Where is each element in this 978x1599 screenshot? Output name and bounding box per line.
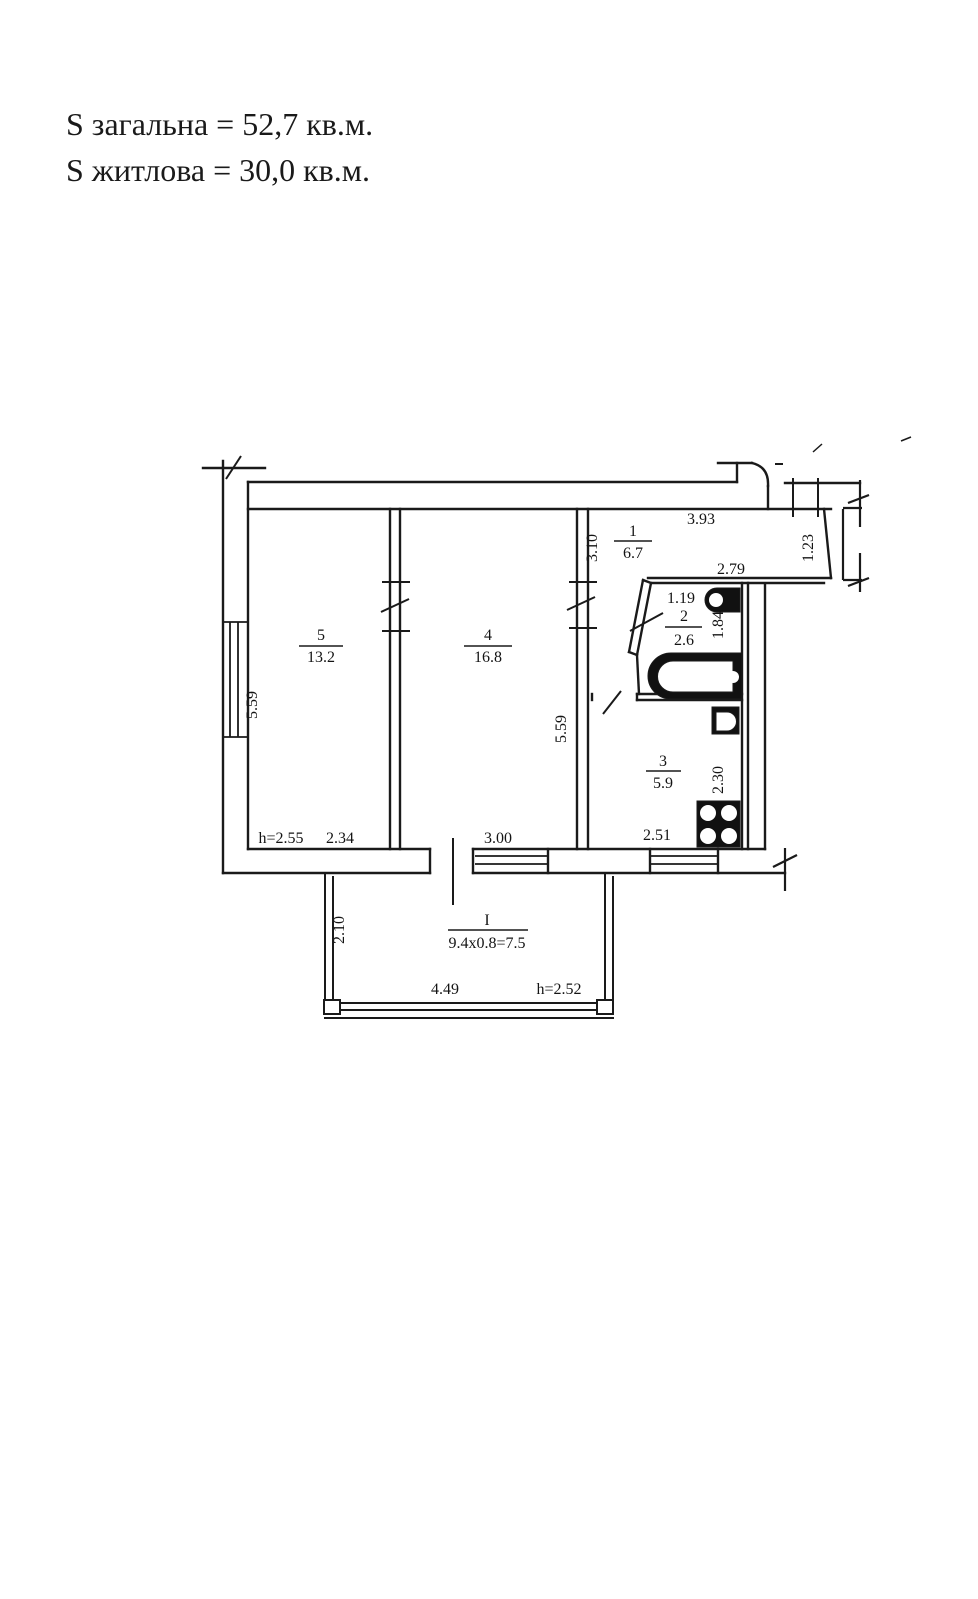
dim-room5-width: 2.34 (326, 830, 354, 847)
dim-kitchen-depth: 2.30 (710, 766, 727, 794)
room5-area: 13.2 (307, 649, 335, 666)
bathtub-icon (648, 653, 742, 699)
toilet-icon (705, 588, 740, 612)
dim-hall-width: 3.10 (584, 534, 601, 562)
living-area-title: S житлова = 30,0 кв.м. (66, 152, 370, 189)
room4-number: 4 (484, 627, 492, 644)
hall-area: 6.7 (623, 545, 643, 562)
stove-icon (697, 801, 740, 847)
floor-plan-drawing: 5 13.2 4 16.8 1 6.7 2 2.6 3 5.9 I 9.4x0.… (0, 0, 978, 1599)
dim-room5-wall-left: 5.59 (244, 691, 261, 719)
hall-number: 1 (629, 523, 637, 540)
dim-bathroom-top: 2.79 (717, 561, 745, 578)
dim-hall-length: 3.93 (687, 511, 715, 528)
bathroom-number: 2 (680, 608, 688, 625)
outer-walls (203, 461, 860, 873)
dim-balcony-depth: 2.10 (331, 916, 348, 944)
room4-area: 16.8 (474, 649, 502, 666)
floor-plan-page: S загальна = 52,7 кв.м. S житлова = 30,0… (0, 0, 978, 1599)
balcony-number: I (484, 912, 489, 929)
dim-room4-wall-right: 5.59 (553, 715, 570, 743)
dim-room4-width: 3.00 (484, 830, 512, 847)
dim-hall-right: 1.23 (800, 534, 817, 562)
room5-number: 5 (317, 627, 325, 644)
dim-balcony-height: h=2.52 (536, 981, 581, 998)
dim-bathroom-entry: 1.19 (667, 590, 695, 607)
kitchen-area: 5.9 (653, 775, 673, 792)
dim-kitchen-width: 2.51 (643, 827, 671, 844)
bathroom-area: 2.6 (674, 632, 694, 649)
interior-walls (390, 509, 831, 873)
total-area-title: S загальна = 52,7 кв.м. (66, 106, 373, 143)
sink-icon (712, 707, 739, 734)
dim-room5-height: h=2.55 (258, 830, 303, 847)
kitchen-number: 3 (659, 753, 667, 770)
dim-bathroom-right: 1.84 (710, 611, 727, 639)
balcony-area: 9.4x0.8=7.5 (448, 935, 525, 952)
dim-balcony-width: 4.49 (431, 981, 459, 998)
